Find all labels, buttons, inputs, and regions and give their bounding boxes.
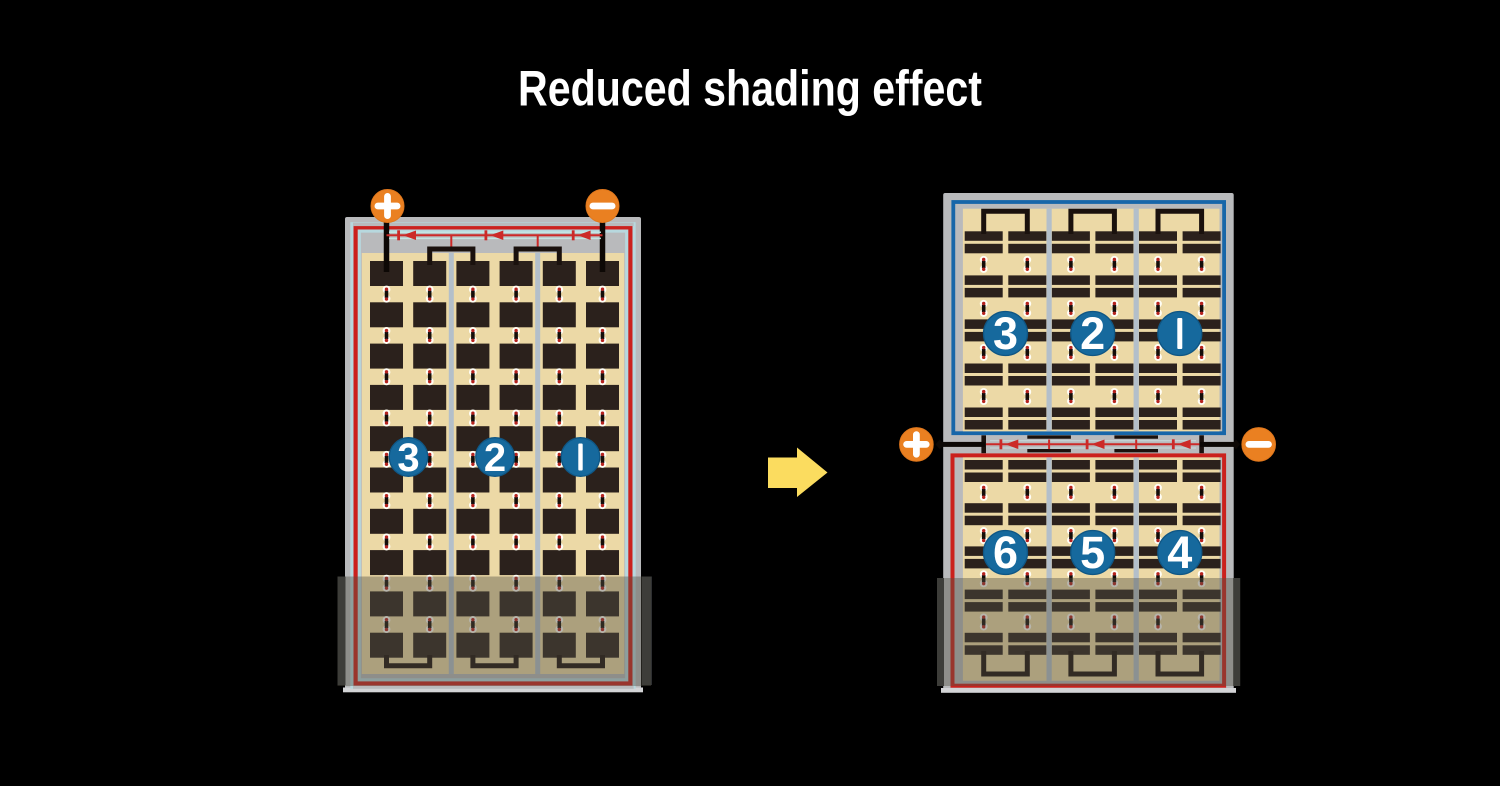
svg-text:3: 3 — [397, 436, 419, 480]
svg-text:6: 6 — [993, 527, 1018, 578]
svg-text:5: 5 — [1080, 527, 1105, 578]
svg-text:Reduced shading effect: Reduced shading effect — [518, 60, 982, 117]
svg-text:2: 2 — [1080, 308, 1105, 359]
svg-text:4: 4 — [1167, 527, 1192, 578]
svg-text:2: 2 — [484, 436, 506, 480]
svg-text:3: 3 — [993, 308, 1018, 359]
